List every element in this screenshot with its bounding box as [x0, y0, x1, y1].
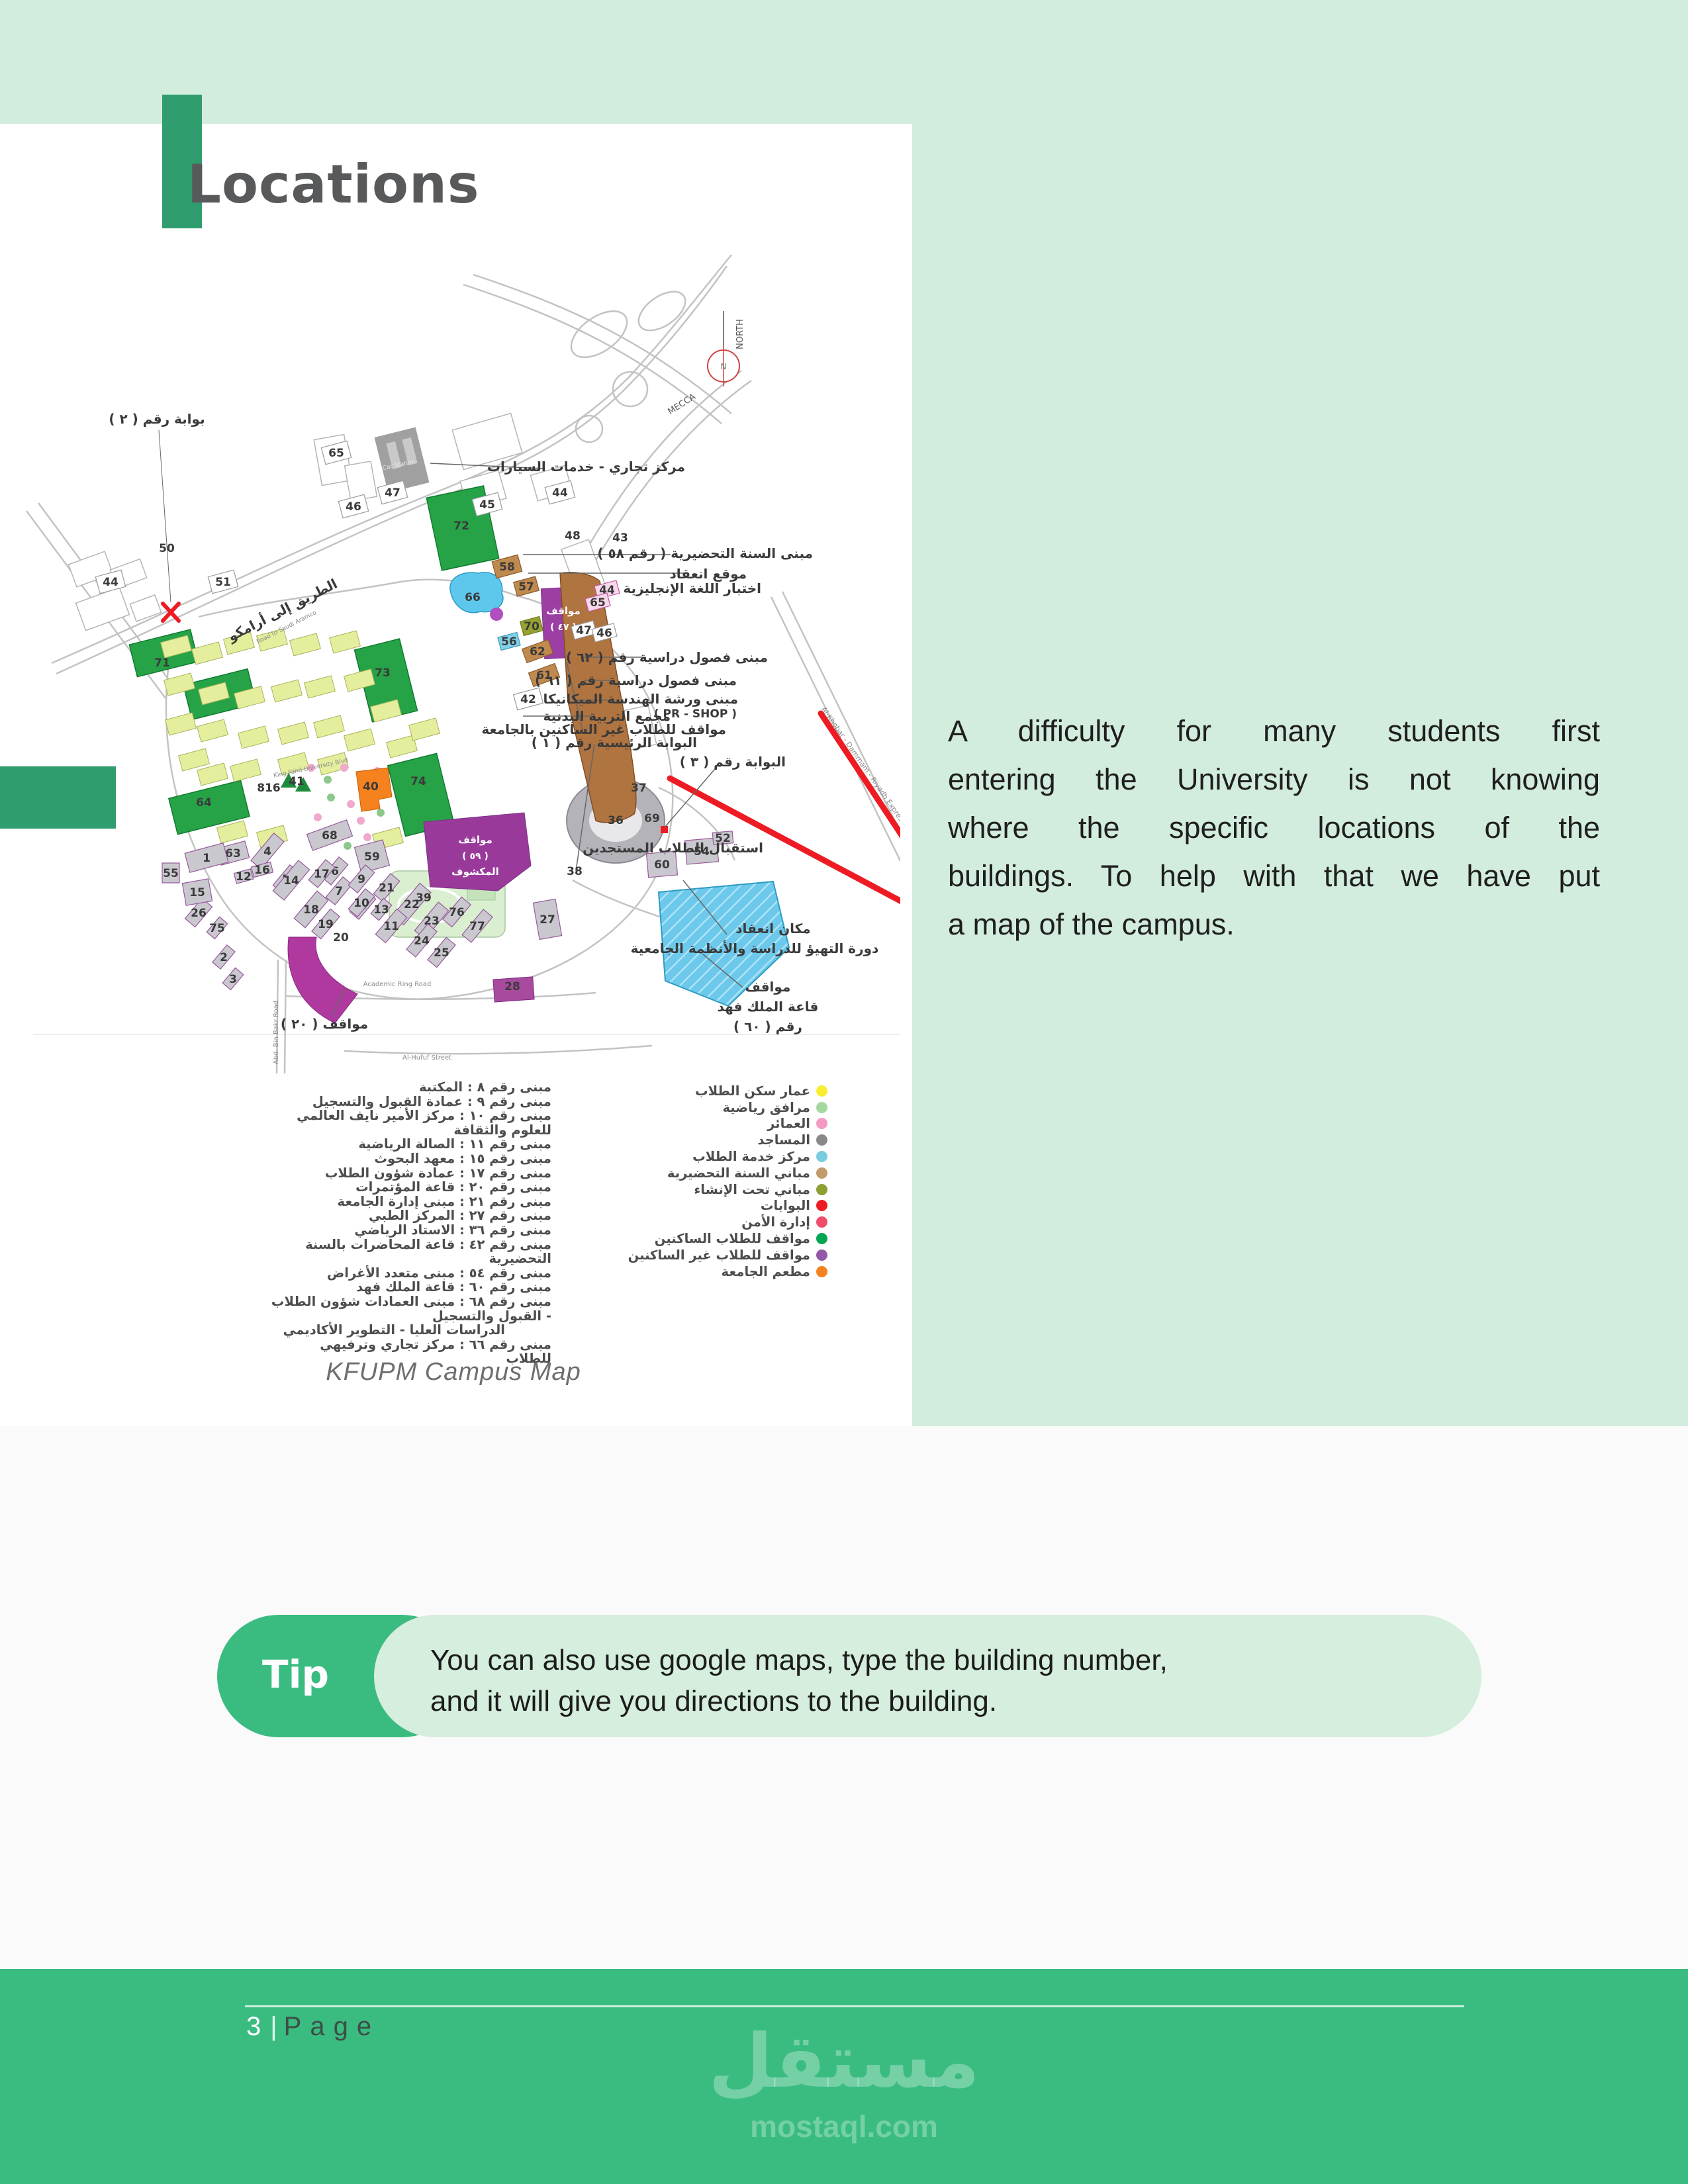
- legend-building-line: مبنى رقم ٩ : عمادة القبول والتسجيل: [270, 1095, 551, 1109]
- map-label: رقم ( ٦٠ ): [733, 1019, 802, 1034]
- legend-color-dot: [816, 1184, 827, 1195]
- building-number: 36: [608, 814, 624, 827]
- legend-category-label: البوابات: [761, 1198, 810, 1213]
- legend-category-row: مرافق رياضية: [677, 1099, 827, 1116]
- building-number: 58: [499, 561, 515, 574]
- map-label: مبنى فصول دراسية رقم ( ٦١ ): [535, 672, 737, 688]
- building-number: 10: [353, 897, 369, 910]
- building-number: 20: [333, 931, 349, 944]
- watermark-domain: mostaql.com: [645, 2109, 1043, 2144]
- building-number: 38: [567, 865, 583, 878]
- legend-category-label: العمائر: [767, 1116, 810, 1131]
- map-label: اختبار اللغة الإنجليزية: [623, 580, 761, 596]
- legend-color-dot: [816, 1200, 827, 1211]
- legend-building-line: مبنى رقم ٣٦ : الاستاد الرياضي: [270, 1223, 551, 1238]
- legend-color-categories: عمار سكن الطلابمرافق رياضيةالعمائرالمساج…: [677, 1083, 827, 1280]
- legend-color-dot: [816, 1118, 827, 1129]
- map-label: ( ٥٩ ): [462, 851, 489, 862]
- legend-building-line: مبنى رقم ٦٠ : قاعة الملك فهد: [270, 1280, 551, 1295]
- building-number: 71: [154, 657, 170, 670]
- legend-category-label: مواقف للطلاب الساكنين: [655, 1231, 810, 1246]
- building-number: 76: [449, 906, 465, 919]
- building-number: 47: [576, 624, 592, 637]
- building-number: 18: [303, 903, 319, 917]
- legend-category-row: البوابات: [677, 1198, 827, 1214]
- building-number: 39: [416, 891, 432, 905]
- document-page: Locations: [0, 0, 1688, 2184]
- legend-category-label: مركز خدمة الطلاب: [692, 1149, 810, 1164]
- page-number-separator: |: [270, 2012, 277, 2042]
- building-number: 28: [504, 980, 520, 993]
- building-number: 77: [469, 920, 485, 933]
- map-label: مبنى السنة التحضيرية ( رقم ٥٨ ): [597, 545, 813, 561]
- map-label: البوابة الرئيسية رقم ( ١ ): [532, 735, 697, 751]
- legend-building-line: مبنى رقم ٢٠ : قاعة المؤتمرات: [270, 1180, 551, 1195]
- map-label: مواقف: [546, 605, 581, 617]
- legend-category-row: العمائر: [677, 1116, 827, 1132]
- legend-color-dot: [816, 1167, 827, 1179]
- building-number: 9: [357, 873, 365, 886]
- building-number: 12: [236, 870, 252, 884]
- intro-line: entering the University is not knowing: [948, 755, 1600, 803]
- building-number: 42: [520, 693, 536, 706]
- page-number: 3: [246, 2012, 261, 2042]
- map-label: ( ٤٧ ): [550, 622, 577, 633]
- legend-category-label: المساجد: [757, 1132, 810, 1148]
- building-number: 13: [373, 903, 389, 917]
- legend-building-line: مبنى رقم ١١ : الصالة الرياضية: [270, 1137, 551, 1152]
- building-number: 73: [375, 666, 391, 680]
- footer-divider-line: [245, 2005, 1464, 2007]
- building-number: 47: [385, 486, 400, 500]
- footer-page-number: 3 | Page: [246, 2012, 380, 2042]
- intro-line: A difficulty for many students first: [948, 707, 1600, 755]
- building-number: 62: [530, 645, 545, 659]
- building-number: 46: [596, 627, 612, 640]
- legend-color-dot: [816, 1085, 827, 1097]
- legend-category-row: عمار سكن الطلاب: [677, 1083, 827, 1099]
- map-label: Academic Ring Road: [363, 981, 432, 988]
- map-label: مبنى ورشة الهندسة الميكانيكا: [543, 691, 738, 707]
- legend-building-line: مبنى رقم ٢٧ : المركز الطبي: [270, 1208, 551, 1223]
- building-number: 816: [257, 782, 281, 795]
- building-number: 48: [565, 529, 581, 543]
- legend-color-dot: [816, 1216, 827, 1228]
- legend-category-row: مطعم الجامعة: [677, 1263, 827, 1280]
- map-label: N: [721, 362, 727, 371]
- intro-line: buildings. To help with that we have put: [948, 852, 1600, 900]
- legend-category-label: مباني تحت الإنشاء: [694, 1182, 810, 1197]
- building-number: 24: [414, 934, 430, 948]
- building-number: 25: [434, 946, 449, 960]
- building-number: 72: [453, 520, 469, 533]
- tip-text-line: and it will give you directions to the b…: [430, 1681, 1463, 1722]
- building-number: 51: [215, 576, 231, 589]
- map-label: مواقف: [458, 834, 492, 846]
- legend-building-line: مبنى رقم ٥٤ : مبنى متعدد الأغراض: [270, 1266, 551, 1281]
- map-label: مواقف ( ٢٠ ): [281, 1016, 368, 1032]
- building-number: 17: [314, 868, 330, 881]
- map-label: موقع انعقاد: [670, 566, 747, 582]
- legend-color-dot: [816, 1151, 827, 1162]
- legend-building-line: مبنى رقم ١٥ : معهد البحوث: [270, 1152, 551, 1166]
- intro-line: where the specific locations of the: [948, 803, 1600, 852]
- tip-text: You can also use google maps, type the b…: [430, 1640, 1463, 1722]
- building-number: 26: [191, 907, 207, 920]
- building-number: 55: [163, 867, 179, 880]
- building-number: 57: [518, 580, 534, 594]
- building-number: 44: [552, 486, 568, 500]
- map-label: Abd. Bin Bakr Road: [273, 1001, 280, 1064]
- watermark: مستقل mostaql.com: [645, 2019, 1043, 2144]
- legend-category-label: مرافق رياضية: [722, 1100, 810, 1115]
- intro-line: a map of the campus.: [948, 900, 1600, 948]
- building-number: 56: [501, 635, 517, 649]
- building-number: 66: [465, 591, 481, 604]
- building-number: 65: [590, 596, 606, 610]
- building-number: 15: [189, 886, 205, 899]
- building-number: 75: [209, 922, 225, 935]
- legend-category-row: مواقف للطلاب الساكنين: [677, 1230, 827, 1247]
- building-number: 45: [479, 498, 495, 512]
- legend-category-label: إدارة الأمن: [741, 1214, 810, 1230]
- building-number: 50: [159, 542, 175, 555]
- map-label: Al-Hufuf Street: [402, 1054, 451, 1062]
- legend-building-line: مبنى رقم ٤٢ : قاعة المحاضرات بالسنة التح…: [270, 1238, 551, 1266]
- legend-building-line: مبنى رقم ١٧ : عمادة شؤون الطلاب: [270, 1166, 551, 1181]
- map-label: مواقف: [745, 979, 791, 995]
- building-number: 19: [318, 918, 334, 931]
- map-label: مبنى فصول دراسية رقم ( ٦٢ ): [566, 649, 768, 665]
- legend-building-line: مبنى رقم ٢١ : مبنى إدارة الجامعة: [270, 1195, 551, 1209]
- building-number: 70: [524, 620, 539, 633]
- page-title: Locations: [187, 154, 480, 215]
- legend-category-row: مواقف للطلاب غير الساكنين: [677, 1247, 827, 1263]
- building-number: 3: [229, 973, 237, 986]
- building-number: 2: [220, 951, 228, 964]
- campus-map: 6547464544724843504451585766705644654746…: [13, 238, 900, 1075]
- tip-label: Tip: [217, 1652, 374, 1697]
- building-number: 21: [379, 882, 395, 895]
- legend-category-label: مباني السنة التحضيرية: [667, 1165, 810, 1181]
- legend-category-row: مباني السنة التحضيرية: [677, 1165, 827, 1181]
- legend-building-line: مبنى رقم ١٠ : مركز الأمير نايف العالمي ل…: [270, 1109, 551, 1137]
- map-label: قاعة الملك فهد: [718, 999, 819, 1015]
- legend-color-dot: [816, 1233, 827, 1244]
- building-number: 27: [539, 913, 555, 927]
- legend-category-row: مركز خدمة الطلاب: [677, 1148, 827, 1165]
- legend-category-label: عمار سكن الطلاب: [695, 1083, 810, 1099]
- building-number: 60: [654, 858, 670, 872]
- map-caption: KFUPM Campus Map: [13, 1358, 894, 1387]
- building-number: 16: [254, 864, 270, 877]
- legend-category-label: مواقف للطلاب غير الساكنين: [628, 1248, 810, 1263]
- map-label: استقبال الطلاب المستجدين: [583, 840, 763, 856]
- building-number: 46: [346, 500, 361, 514]
- legend-color-dot: [816, 1250, 827, 1261]
- legend-category-row: إدارة الأمن: [677, 1214, 827, 1230]
- legend-color-dot: [816, 1266, 827, 1277]
- building-number: 74: [410, 775, 426, 788]
- map-label: بوابة رقم ( ٢ ): [109, 411, 205, 427]
- building-number: 14: [283, 874, 299, 887]
- map-label: البوابة رقم ( ٣ ): [680, 754, 786, 770]
- map-label: مركز تجاري - خدمات السيارات: [487, 459, 685, 475]
- building-number: 40: [363, 780, 379, 794]
- intro-paragraph: A difficulty for many students first ent…: [948, 707, 1600, 948]
- building-number: 41: [289, 775, 305, 788]
- map-label: مكان انعقاد: [735, 921, 810, 936]
- building-number: 11: [383, 920, 399, 933]
- map-label: المكشوف: [451, 866, 499, 878]
- building-number: 64: [196, 796, 212, 809]
- building-number: 68: [322, 829, 338, 842]
- building-number: 44: [103, 576, 118, 589]
- legend-category-label: مطعم الجامعة: [722, 1264, 810, 1279]
- map-label: NORTH: [735, 319, 745, 349]
- page-word: Page: [284, 2012, 380, 2042]
- building-number: 65: [328, 447, 344, 460]
- tip-text-line: You can also use google maps, type the b…: [430, 1640, 1463, 1681]
- building-number: 4: [263, 845, 271, 858]
- legend-color-dot: [816, 1134, 827, 1146]
- legend-category-row: مباني تحت الإنشاء: [677, 1181, 827, 1198]
- building-number: 59: [364, 850, 380, 864]
- left-accent-rectangle: [0, 766, 116, 829]
- building-number: 7: [335, 885, 343, 898]
- legend-building-line: الدراسات العليا - التطوير الأكاديمي: [270, 1323, 551, 1338]
- legend-category-row: المساجد: [677, 1132, 827, 1148]
- legend-color-dot: [816, 1102, 827, 1113]
- building-number: 37: [631, 782, 647, 795]
- building-number: 69: [644, 812, 660, 825]
- building-number: 43: [612, 531, 628, 545]
- legend-building-line: مبنى رقم ٨ : المكتبة: [270, 1080, 551, 1095]
- watermark-arabic: مستقل: [645, 2019, 1043, 2105]
- building-number: 1: [203, 852, 211, 865]
- legend-building-list: مبنى رقم ٨ : المكتبةمبنى رقم ٩ : عمادة ا…: [270, 1080, 551, 1366]
- legend-building-line: مبنى رقم ٦٨ : مبنى العمادات شؤون الطلاب …: [270, 1295, 551, 1323]
- map-label: دورة التهيؤ للدراسة والأنظمة الجامعية: [631, 940, 879, 956]
